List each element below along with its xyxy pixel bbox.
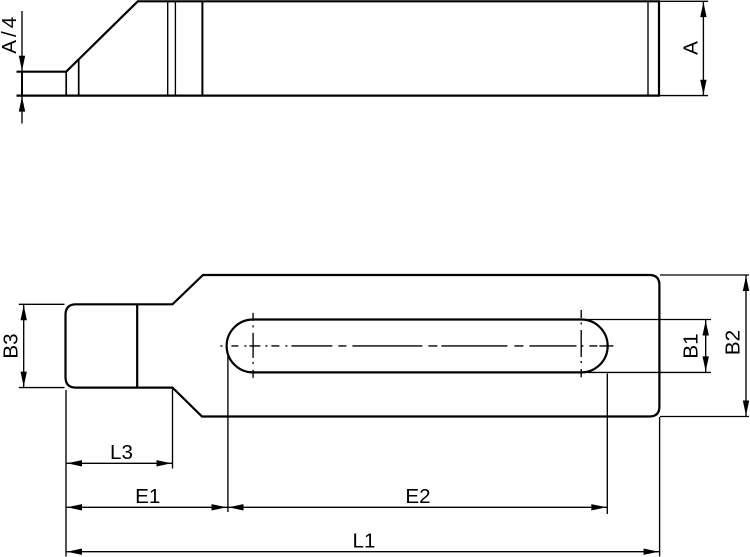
svg-text:L3: L3	[110, 441, 133, 464]
svg-text:B1: B1	[679, 333, 702, 358]
svg-text:E2: E2	[405, 485, 430, 508]
svg-text:L1: L1	[353, 529, 376, 552]
svg-text:B3: B3	[0, 333, 22, 358]
svg-text:A: A	[679, 41, 702, 55]
svg-text:E1: E1	[135, 485, 160, 508]
svg-text:B2: B2	[721, 330, 744, 355]
svg-text:A/4: A/4	[0, 14, 21, 54]
